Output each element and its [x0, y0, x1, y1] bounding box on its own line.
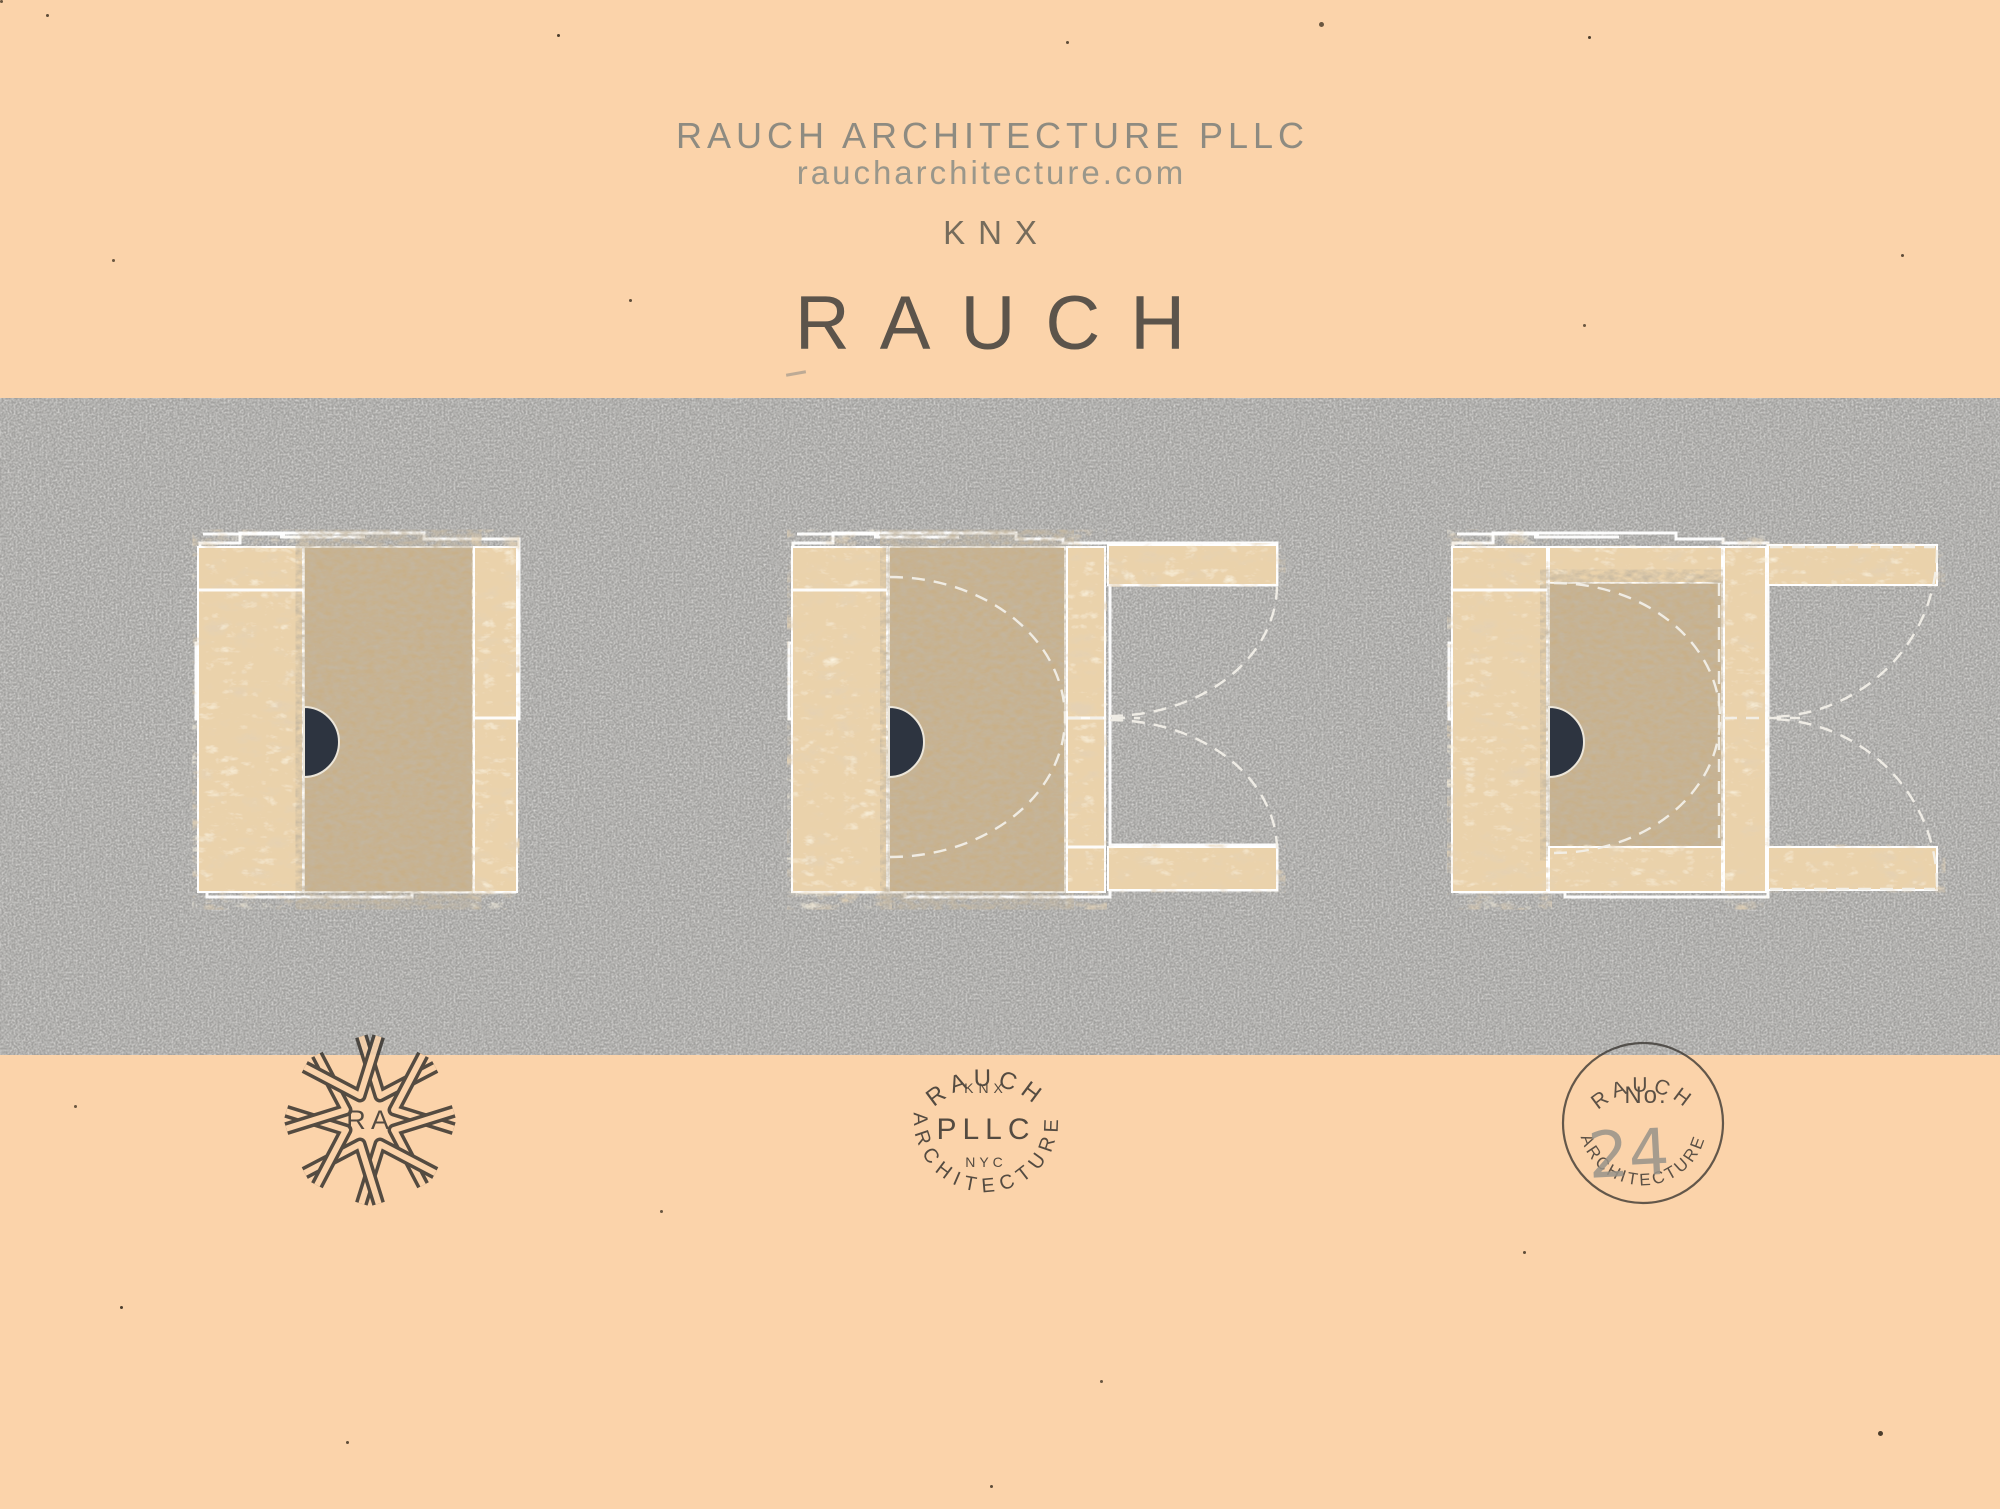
- paper-specks: [0, 0, 3, 3]
- project-number-label: No.: [1624, 1082, 1667, 1109]
- concrete-band: .osb{fill:var(--c-osb,#ead2ab);stroke:#f…: [0, 398, 2000, 1055]
- project-number-handwritten: 24: [1586, 1116, 1671, 1194]
- osb-panel-left: [1452, 547, 1547, 892]
- osb-strip-top: [1549, 547, 1722, 583]
- project-code: KNX: [930, 216, 1050, 249]
- osb-panel-left: [198, 547, 303, 892]
- firm-name: RAUCH ARCHITECTURE PLLC: [671, 118, 1309, 154]
- open-door-bottom: [1108, 847, 1277, 890]
- firm-website: raucharchitecture.com: [794, 156, 1186, 189]
- monogram-letter-r: R: [346, 1105, 366, 1135]
- plan-diagram-closed: [196, 533, 519, 897]
- stray-ink-dash: [786, 370, 806, 376]
- seal-knx: KNX: [964, 1080, 1008, 1096]
- brand-stamp: RAUCH: [765, 286, 1215, 362]
- seal-pllc: PLLC: [936, 1113, 1035, 1146]
- seal-nyc: NYC: [965, 1154, 1007, 1170]
- open-door-top: [1108, 545, 1277, 585]
- monogram-stamp: R A: [258, 1008, 482, 1232]
- kraft-door-panel: [1549, 583, 1722, 847]
- monogram-letter-a: A: [371, 1105, 389, 1135]
- osb-panel-left: [792, 547, 887, 892]
- open-door-bottom: [1768, 847, 1937, 890]
- osb-strip-bottom: [1549, 847, 1722, 892]
- open-door-top: [1768, 545, 1937, 585]
- letterhead-page: RAUCH ARCHITECTURE PLLC raucharchitectur…: [0, 0, 2000, 1509]
- osb-jamb-column: [1724, 547, 1766, 892]
- chevron-star-icon: R A: [286, 1036, 453, 1203]
- firm-seal-stamp: RAUCH KNX PLLC NYC ARCHITECTURE: [900, 1037, 1072, 1209]
- project-seal-stamp: RAUCH No. ARCHITECTURE 24: [1557, 1037, 1729, 1209]
